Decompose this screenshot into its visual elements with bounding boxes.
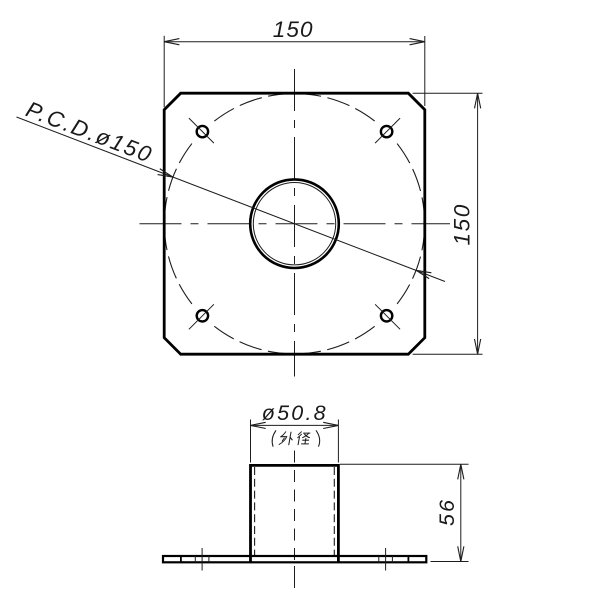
- svg-text:56: 56: [435, 498, 459, 526]
- svg-text:150: 150: [449, 203, 474, 245]
- svg-text:150: 150: [273, 17, 314, 42]
- svg-text:ø50.8: ø50.8: [262, 401, 328, 425]
